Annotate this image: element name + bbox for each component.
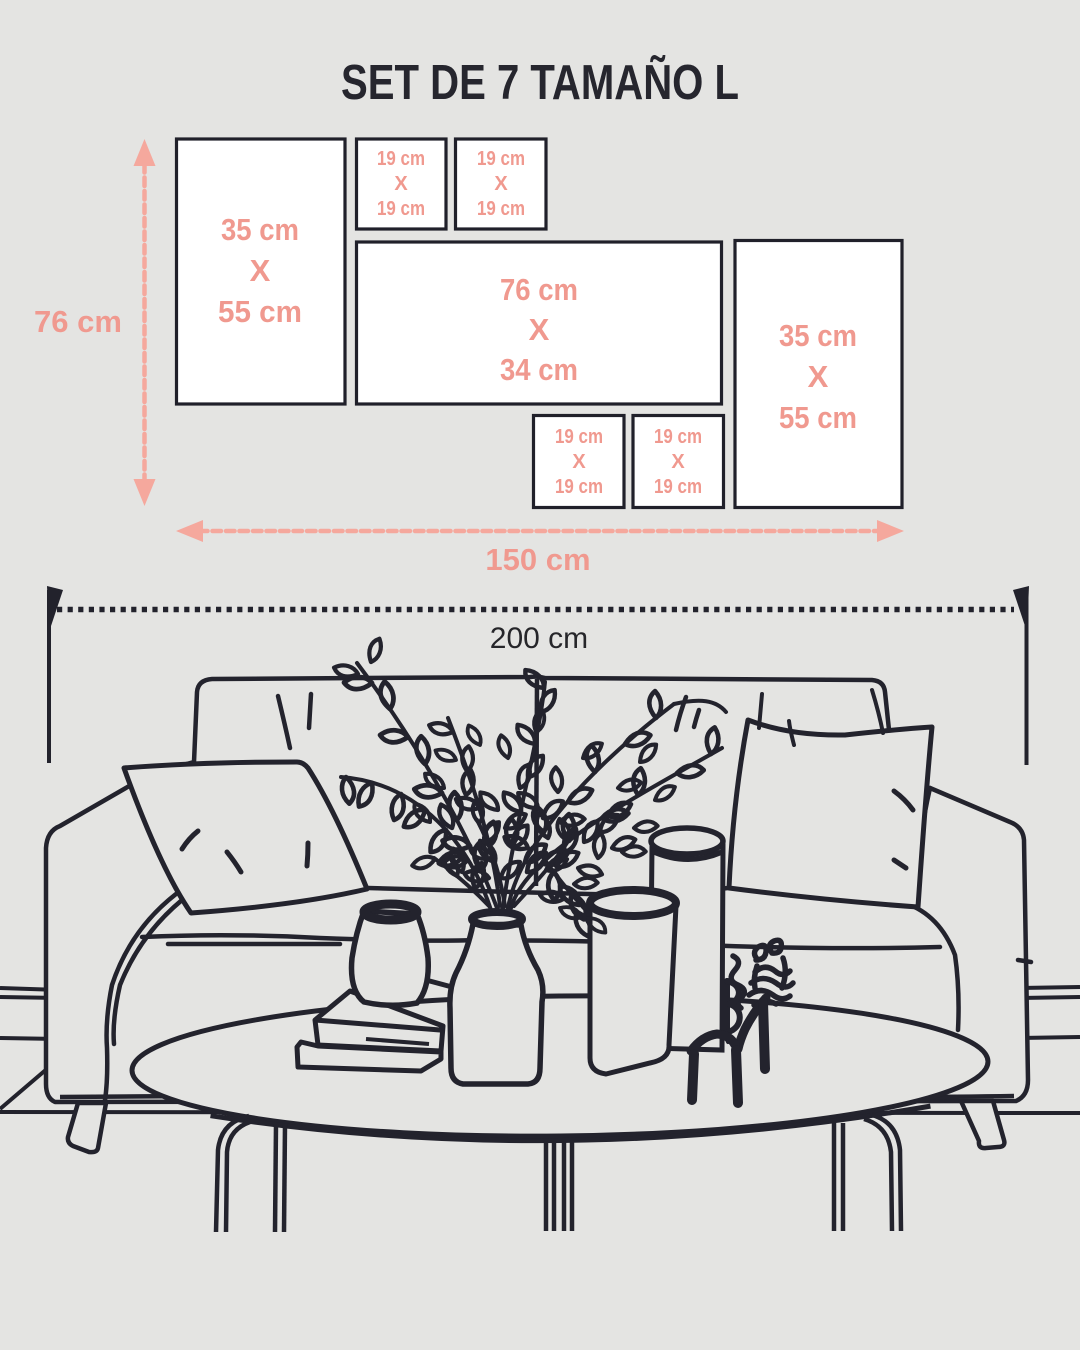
svg-text:19 cm: 19 cm bbox=[555, 426, 603, 448]
svg-text:X: X bbox=[529, 312, 550, 347]
svg-text:76 cm: 76 cm bbox=[500, 272, 578, 307]
svg-text:SET DE 7 TAMAÑO L: SET DE 7 TAMAÑO L bbox=[341, 56, 739, 110]
svg-text:19 cm: 19 cm bbox=[555, 476, 603, 498]
svg-text:35 cm: 35 cm bbox=[779, 318, 857, 353]
svg-text:X: X bbox=[808, 359, 829, 394]
svg-text:X: X bbox=[394, 173, 408, 195]
svg-text:150 cm: 150 cm bbox=[485, 542, 590, 577]
svg-text:X: X bbox=[250, 253, 271, 288]
svg-text:55 cm: 55 cm bbox=[779, 400, 857, 435]
svg-text:34 cm: 34 cm bbox=[500, 352, 578, 387]
svg-text:X: X bbox=[572, 451, 586, 473]
svg-text:35 cm: 35 cm bbox=[221, 212, 299, 247]
svg-text:19 cm: 19 cm bbox=[377, 198, 425, 220]
svg-text:55 cm: 55 cm bbox=[218, 294, 302, 329]
svg-text:X: X bbox=[671, 451, 685, 473]
svg-text:200 cm: 200 cm bbox=[490, 622, 588, 655]
svg-text:19 cm: 19 cm bbox=[654, 426, 702, 448]
svg-text:76 cm: 76 cm bbox=[34, 304, 122, 339]
svg-text:19 cm: 19 cm bbox=[377, 148, 425, 170]
svg-text:19 cm: 19 cm bbox=[477, 198, 525, 220]
svg-text:19 cm: 19 cm bbox=[654, 476, 702, 498]
svg-text:19 cm: 19 cm bbox=[477, 148, 525, 170]
svg-text:X: X bbox=[494, 173, 508, 195]
